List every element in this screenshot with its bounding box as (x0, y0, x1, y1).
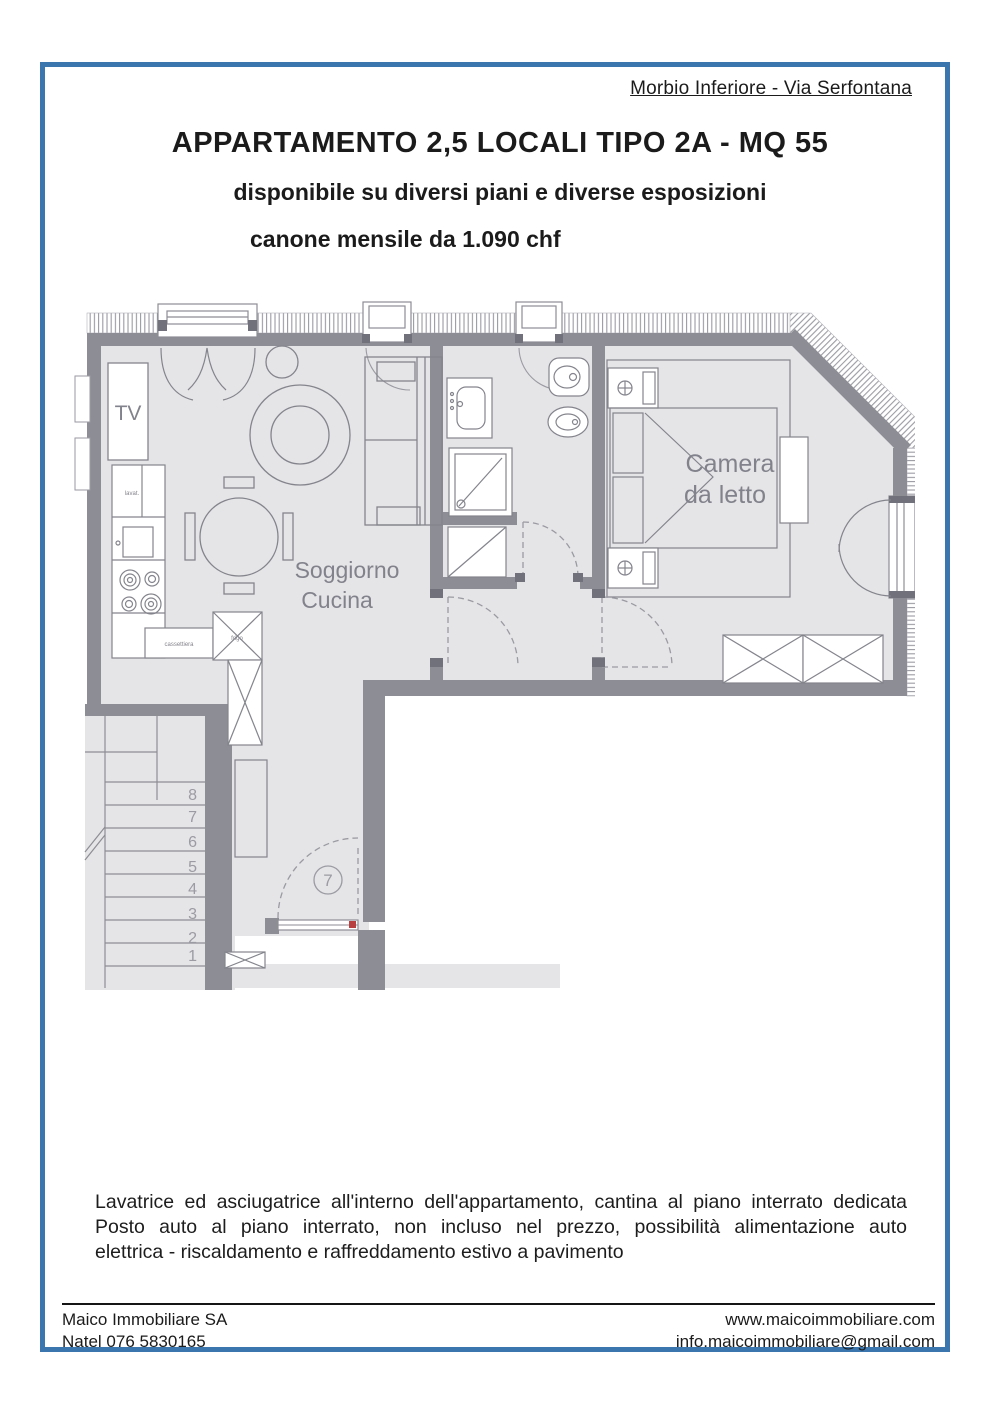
dresser (780, 437, 808, 523)
company-website: www.maicoimmobiliare.com (676, 1309, 935, 1331)
footer-right: www.maicoimmobiliare.com info.maicoimmob… (676, 1309, 935, 1353)
sink-label: lavat. (125, 491, 140, 497)
company-phone: Natel 076 5830165 (62, 1331, 227, 1353)
stair-number: 6 (188, 834, 197, 851)
stair-number: 4 (188, 881, 197, 898)
bedroom-window (889, 496, 915, 598)
fridge-label: frigo (231, 636, 243, 642)
stair-number: 7 (188, 809, 197, 826)
french-window (158, 304, 257, 337)
apartment-number: 7 (323, 871, 332, 890)
shower (449, 448, 512, 516)
washer-column (448, 527, 506, 577)
hall-box (225, 952, 265, 968)
stair-number: 3 (188, 906, 197, 923)
sink (447, 378, 492, 438)
pantry-column (228, 660, 262, 745)
nightstand-top (608, 368, 658, 408)
toilet (549, 358, 589, 396)
stair-number: 8 (188, 787, 197, 804)
bedroom-label-2: da letto (684, 481, 766, 509)
flyer-page: Morbio Inferiore - Via Serfontana APPART… (0, 0, 1000, 1415)
description-line-3: elettrica - riscaldamento e raffreddamen… (95, 1240, 907, 1265)
price-line: canone mensile da 1.090 chf (250, 226, 561, 253)
living-label-1: Soggiorno (295, 557, 400, 583)
stair-number: 5 (188, 859, 197, 876)
footer-left: Maico Immobiliare SA Natel 076 5830165 (62, 1309, 227, 1353)
door-marker (349, 921, 356, 928)
description-paragraph: Lavatrice ed asciugatrice all'interno de… (95, 1190, 907, 1265)
bidet (548, 407, 588, 437)
landing-floor (85, 964, 560, 988)
company-email: info.maicoimmobiliare@gmail.com (676, 1331, 935, 1353)
living-label-2: Cucina (301, 587, 373, 613)
footer-divider (62, 1303, 935, 1305)
tv-label: TV (115, 402, 142, 425)
stair-number: 1 (188, 948, 197, 965)
drawers-label: cassettiera (164, 642, 194, 648)
company-name: Maico Immobiliare SA (62, 1309, 227, 1331)
stair-number: 2 (188, 930, 197, 947)
wardrobe (723, 635, 883, 683)
page-title: APPARTAMENTO 2,5 LOCALI TIPO 2A - MQ 55 (0, 127, 1000, 160)
location-header: Morbio Inferiore - Via Serfontana (630, 78, 912, 100)
bedroom-label-1: Camera (686, 450, 775, 478)
description-line-1: Lavatrice ed asciugatrice all'interno de… (95, 1190, 907, 1215)
description-line-2: Posto auto al piano interrato, non inclu… (95, 1215, 907, 1240)
subtitle: disponibile su diversi piani e diverse e… (0, 179, 1000, 206)
entrance-door (278, 920, 358, 930)
nightstand-bottom (608, 548, 658, 588)
floor-plan: 8 7 6 5 4 3 2 1 (73, 300, 915, 990)
